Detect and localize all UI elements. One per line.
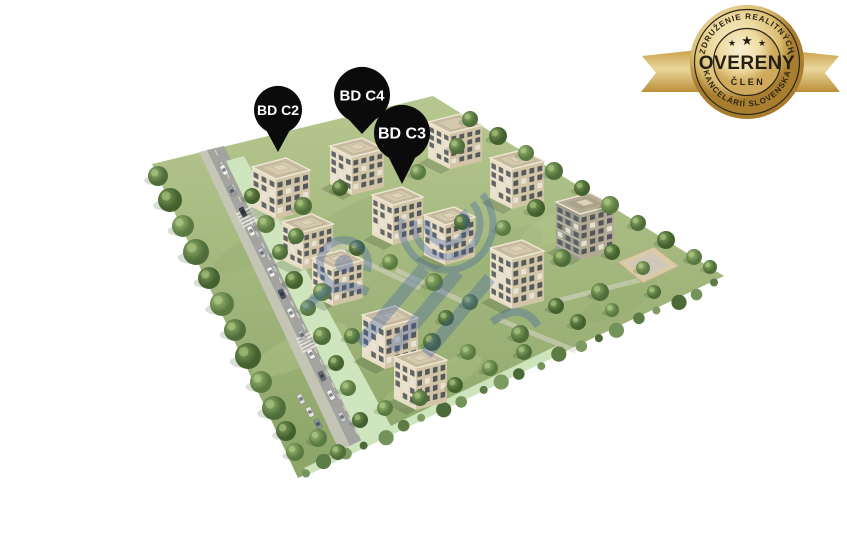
badge-star-right: ★ bbox=[758, 39, 766, 49]
pin-label: BD C4 bbox=[339, 87, 385, 104]
verified-member-badge: ZDRUŽENIE REALITNÝCH KANCELÁRIÍ SLOVENSK… bbox=[634, 0, 847, 132]
pin-label: BD C2 bbox=[257, 102, 299, 118]
badge-star-middle: ★ bbox=[741, 34, 753, 49]
listing-image: BD C2 BD C4 BD C3 bbox=[0, 0, 847, 550]
badge-title: OVERENÝ bbox=[699, 52, 795, 74]
pin-label: BD C3 bbox=[378, 126, 426, 143]
badge-subtitle: ČLEN bbox=[731, 76, 766, 87]
badge-star-left: ★ bbox=[728, 39, 736, 49]
